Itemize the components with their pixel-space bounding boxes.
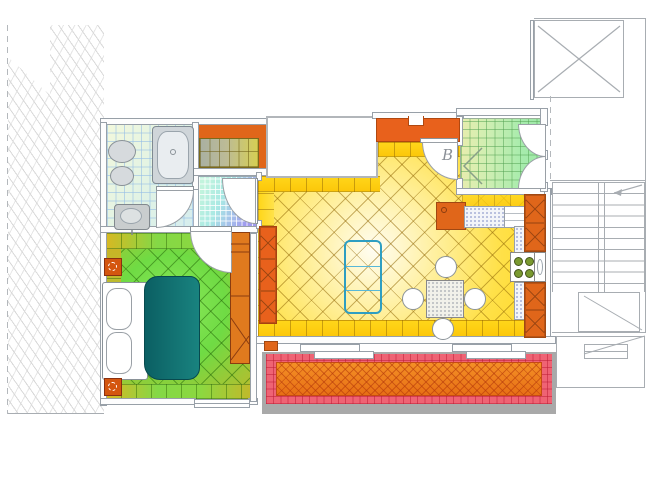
burner-icon (525, 269, 534, 278)
stair-landing (578, 292, 640, 332)
pillow (106, 288, 132, 330)
stair-landing-line (552, 332, 646, 333)
stairwell-wall-line (534, 18, 645, 19)
wall (100, 398, 196, 405)
sideboard-door-icon (260, 291, 276, 323)
window-threshold (466, 351, 526, 359)
planter-box (264, 341, 278, 351)
dining-chair (432, 318, 454, 340)
kitchen-sink (534, 252, 546, 282)
radiator (104, 258, 122, 276)
adjacent-building-hatch (8, 22, 104, 414)
bedroom-window (194, 399, 250, 408)
sink-bowl (537, 259, 543, 275)
wall (192, 168, 276, 176)
sideboard-door-icon (260, 227, 276, 259)
site-boundary-line (8, 413, 104, 414)
elevator-shaft (534, 20, 624, 98)
kitchen-counter (464, 206, 506, 228)
kitchen-cabinet (436, 202, 466, 230)
wardrobe (230, 232, 250, 364)
burner-icon (514, 257, 523, 266)
cabinet-door-icon (525, 223, 545, 251)
cabinet-door-icon (525, 195, 545, 223)
void-shaft (266, 116, 378, 178)
washbasin-bowl (120, 208, 142, 224)
knob-icon (441, 207, 447, 213)
radiator (104, 378, 122, 396)
bed-duvet (144, 276, 200, 380)
bedroom-border-tiles (106, 384, 252, 399)
tall-cabinet (524, 282, 546, 338)
neighbor-window (584, 351, 628, 359)
tall-cabinet (524, 194, 546, 252)
radiator-fan-icon (108, 382, 117, 391)
cabinet-door-icon (525, 310, 545, 337)
wall-cabinet-notch (408, 116, 424, 126)
landing-dash-line (550, 96, 551, 180)
coffee-table (344, 240, 382, 314)
wall (456, 108, 548, 116)
radiator-fan-icon (108, 262, 117, 271)
dining-table (426, 280, 464, 318)
balcony-deck (276, 362, 542, 396)
closet-shelf-tiles (199, 138, 259, 168)
floor-plan-canvas: B (0, 0, 648, 492)
stair-flight-divider (598, 182, 605, 292)
window-threshold (314, 351, 374, 359)
burner-icon (525, 257, 534, 266)
burner-icon (514, 269, 523, 278)
sink-drainer (504, 206, 526, 228)
stair-landing-line (550, 180, 646, 181)
stairwell-wall-line (645, 18, 646, 332)
living-border-tiles (258, 176, 380, 192)
sideboard (259, 226, 277, 324)
window-wall (256, 336, 556, 344)
door-label-b: B (442, 146, 453, 164)
wall (250, 233, 257, 402)
wall (100, 118, 276, 125)
cabinet-door-icon (525, 283, 545, 310)
property-dash-line (7, 25, 8, 414)
sideboard-door-icon (260, 259, 276, 291)
pillow (106, 332, 132, 374)
bathtub-basin (157, 131, 189, 179)
dining-chair (464, 288, 486, 310)
dining-chair (402, 288, 424, 310)
toilet (108, 140, 136, 163)
stove (510, 252, 536, 282)
dining-chair (435, 256, 457, 278)
bidet (110, 166, 134, 186)
